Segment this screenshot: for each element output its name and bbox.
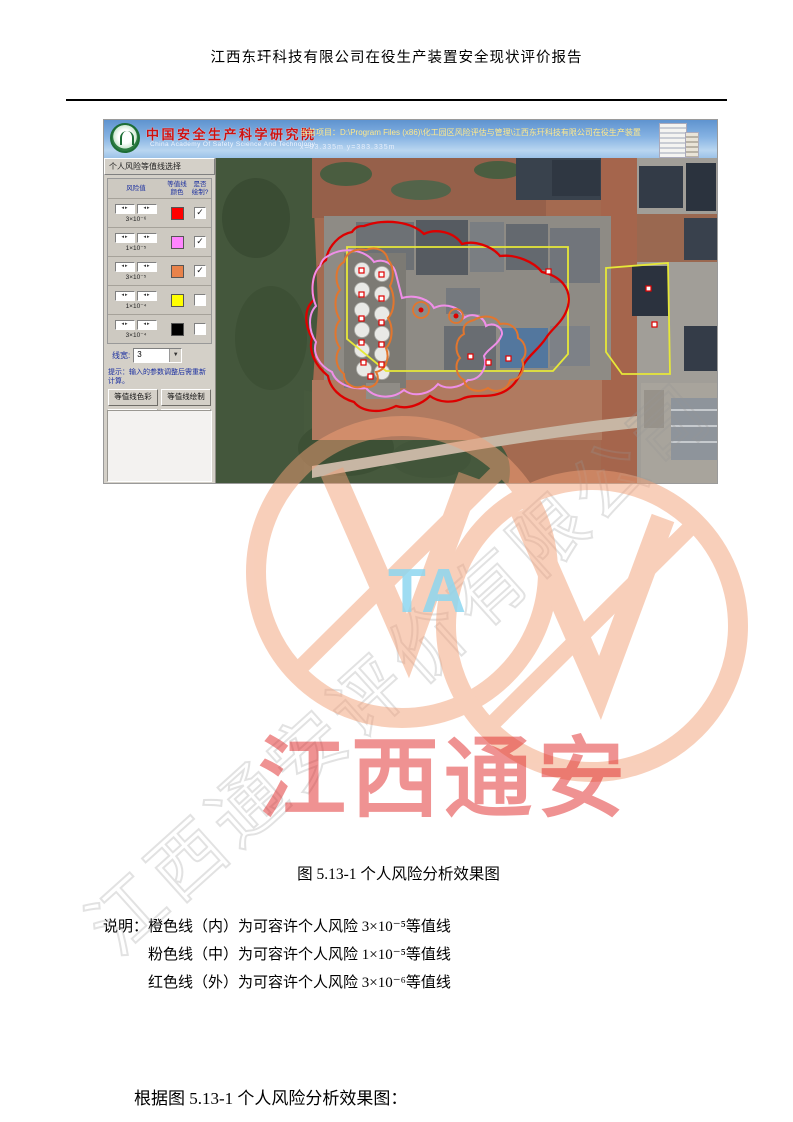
- page-header-title: 江西东玕科技有限公司在役生产装置安全现状评价报告: [66, 46, 727, 67]
- draw-checkbox[interactable]: [194, 294, 206, 306]
- panel-hint: 提示：输入的参数调整后需重新计算。: [108, 368, 211, 386]
- table-row: ◂▸◂▸ 1×10⁻⁵ ✓: [108, 228, 211, 257]
- exponent-spinner[interactable]: ◂▸: [137, 233, 157, 243]
- col-draw: 是否绘制?: [190, 179, 210, 198]
- note-red-line: 红色线（外）为可容许个人风险 3×10⁻⁶等值线: [103, 969, 697, 997]
- figure-notes: 说明：橙色线（内）为可容许个人风险 3×10⁻⁵等值线 粉色线（中）为可容许个人…: [103, 913, 697, 997]
- table-row: ◂▸◂▸ 1×10⁻⁴: [108, 286, 211, 315]
- color-swatch: [171, 323, 184, 336]
- color-swatch: [171, 207, 184, 220]
- org-name-en: China Academy Of Safety Science And Tech…: [150, 141, 315, 148]
- risk-value-label: 3×10⁻⁵: [108, 273, 164, 281]
- building-photo: [659, 123, 687, 158]
- mantissa-spinner[interactable]: ◂▸: [115, 233, 135, 243]
- note-pink-line: 粉色线（中）为可容许个人风险 1×10⁻⁵等值线: [103, 941, 697, 969]
- cursor-coordinates: x=93.335m y=383.335m: [300, 144, 396, 151]
- linewidth-dropdown[interactable]: 3 ▼: [133, 348, 182, 363]
- figure-caption: 图 5.13-1 个人风险分析效果图: [100, 862, 697, 884]
- header-rule: [66, 99, 727, 101]
- color-swatch: [171, 265, 184, 278]
- mantissa-spinner[interactable]: ◂▸: [115, 291, 135, 301]
- risk-value-table: 风险值 等值线颜色 是否绘制? ◂▸◂▸ 3×10⁻⁶ ✓ ◂▸◂▸ 1×10⁻…: [107, 178, 212, 344]
- mantissa-spinner[interactable]: ◂▸: [115, 320, 135, 330]
- draw-checkbox[interactable]: ✓: [194, 265, 206, 277]
- contour-selection-panel: 个人风险等值线选择 风险值 等值线颜色 是否绘制? ◂▸◂▸ 3×10⁻⁶ ✓ …: [104, 158, 216, 484]
- table-row: ◂▸◂▸ 3×10⁻⁴: [108, 315, 211, 343]
- draw-checkbox[interactable]: ✓: [194, 207, 206, 219]
- watermark-ta-text: TA: [388, 556, 466, 627]
- exponent-spinner[interactable]: ◂▸: [137, 291, 157, 301]
- linewidth-label: 线宽:: [112, 350, 130, 361]
- watermark-red-text: 江西通安: [258, 708, 630, 835]
- table-row: ◂▸◂▸ 3×10⁻⁶ ✓: [108, 199, 211, 228]
- satellite-map-svg: [216, 158, 718, 484]
- exponent-spinner[interactable]: ◂▸: [137, 204, 157, 214]
- contour-color-button[interactable]: 等值线色彩: [108, 389, 158, 406]
- col-contour-color: 等值线颜色: [164, 179, 190, 198]
- paragraph: 高敏感防护目标、重要防护目标、一般防护目标中的一类防护目标（≤3×10⁻⁶）等值…: [100, 1116, 697, 1122]
- app-titlebar: 中国安全生产科学研究院 China Academy Of Safety Scie…: [104, 120, 717, 158]
- casst-logo-icon: [110, 123, 140, 153]
- risk-software-screenshot: 中国安全生产科学研究院 China Academy Of Safety Scie…: [103, 119, 718, 484]
- risk-value-label: 1×10⁻⁴: [108, 302, 164, 310]
- body-text: 根据图 5.13-1 个人风险分析效果图： 高敏感防护目标、重要防护目标、一般防…: [100, 1082, 697, 1122]
- exponent-spinner[interactable]: ◂▸: [137, 262, 157, 272]
- draw-checkbox[interactable]: [194, 323, 206, 335]
- table-row: ◂▸◂▸ 3×10⁻⁵ ✓: [108, 257, 211, 286]
- mantissa-spinner[interactable]: ◂▸: [115, 262, 135, 272]
- report-page: 江西东玕科技有限公司在役生产装置安全现状评价报告 中国安全生产科学研究院 Chi…: [0, 0, 793, 1122]
- mantissa-spinner[interactable]: ◂▸: [115, 204, 135, 214]
- draw-contour-button[interactable]: 等值线绘制: [161, 389, 211, 406]
- paragraph: 根据图 5.13-1 个人风险分析效果图：: [100, 1082, 697, 1116]
- color-swatch: [171, 294, 184, 307]
- color-swatch: [171, 236, 184, 249]
- panel-empty-area: [107, 410, 212, 482]
- table-header-row: 风险值 等值线颜色 是否绘制?: [108, 179, 211, 199]
- current-project-path: 当前项目：D:\Program Files (x86)\化工园区风险评估与管理\…: [300, 127, 645, 138]
- exponent-spinner[interactable]: ◂▸: [137, 320, 157, 330]
- draw-checkbox[interactable]: ✓: [194, 236, 206, 248]
- panel-title: 个人风险等值线选择: [104, 158, 215, 175]
- col-risk-value: 风险值: [108, 183, 164, 195]
- note-orange-line: 说明：橙色线（内）为可容许个人风险 3×10⁻⁵等值线: [103, 913, 697, 941]
- linewidth-value: 3: [137, 350, 141, 359]
- satellite-map-view[interactable]: [216, 158, 718, 484]
- building-photo-wing: [685, 132, 699, 158]
- risk-value-label: 1×10⁻⁵: [108, 244, 164, 252]
- risk-value-label: 3×10⁻⁶: [108, 215, 164, 223]
- risk-value-label: 3×10⁻⁴: [108, 331, 164, 339]
- chevron-down-icon[interactable]: ▼: [169, 349, 181, 362]
